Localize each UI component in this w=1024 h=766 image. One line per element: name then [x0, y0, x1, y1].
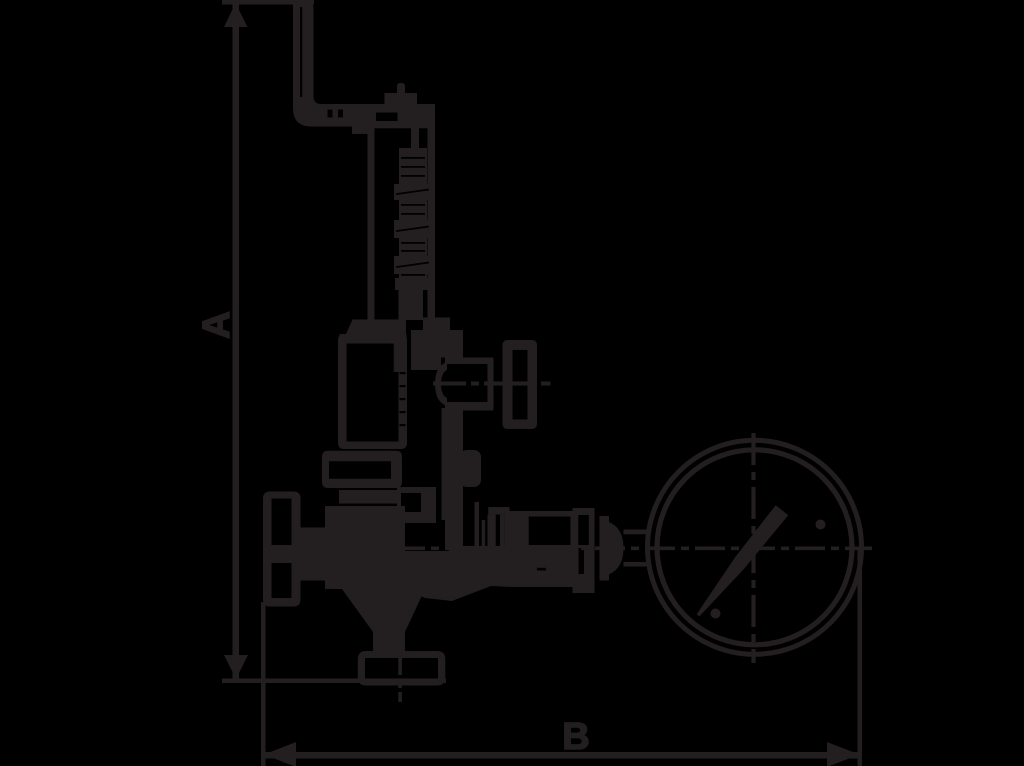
svg-text:B: B [562, 716, 589, 758]
svg-text:A: A [196, 311, 238, 338]
